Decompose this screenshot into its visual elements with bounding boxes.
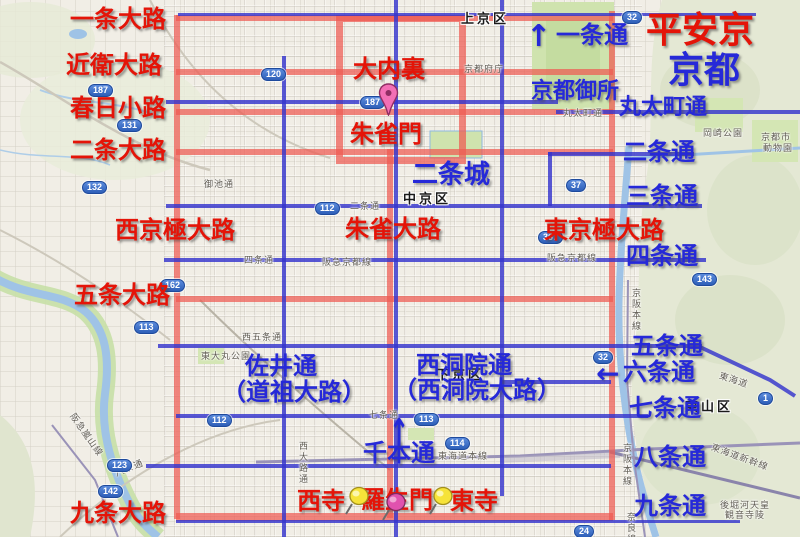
- modern-road-nijo-dori-link: [548, 152, 552, 206]
- map-text: 二条通: [350, 199, 380, 212]
- title-heiankyo: 平安京: [646, 12, 754, 50]
- route-shield-37: 37: [566, 179, 586, 192]
- route-shield-112: 112: [315, 202, 340, 215]
- direction-arrow-icon: ↑: [526, 22, 551, 52]
- modern-label: 六条通: [623, 361, 695, 386]
- map-canvas[interactable]: 平安京 京都 187131132162113120187112112113114…: [0, 0, 800, 537]
- ancient-road-nishikyogoku-oji: [174, 15, 180, 519]
- direction-arrow-icon: ↑: [389, 414, 409, 452]
- route-shield-123: 123: [107, 459, 132, 472]
- map-text: 東大丸公園: [201, 349, 251, 362]
- map-text: 岡崎公園: [703, 126, 743, 139]
- map-text: 西五条通: [242, 330, 282, 343]
- modern-label: 京都御所: [531, 79, 619, 102]
- route-shield-142: 142: [98, 485, 123, 498]
- modern-road-nishioji-dori: [282, 56, 286, 537]
- ancient-label: 大内裏: [353, 58, 425, 83]
- route-shield-24: 24: [574, 525, 594, 537]
- modern-label: 一条通: [556, 24, 628, 49]
- map-text: 京阪本線: [621, 443, 634, 487]
- route-shield-112: 112: [207, 414, 232, 427]
- route-shield-113: 113: [414, 413, 439, 426]
- map-text: 阪急京都線: [547, 251, 597, 264]
- ancient-label: 西寺: [297, 490, 345, 515]
- modern-label: 四条通: [626, 245, 698, 270]
- ancient-label: 一条大路: [70, 8, 166, 33]
- toji-pin-icon[interactable]: [427, 484, 455, 521]
- map-text: 阪急京都線: [322, 255, 372, 268]
- route-shield-113: 113: [134, 321, 159, 334]
- modern-label: 七条通: [629, 397, 701, 422]
- saiji-pin-icon[interactable]: [343, 484, 371, 521]
- route-shield-132: 132: [82, 181, 107, 194]
- map-text: 京都府庁: [464, 62, 504, 75]
- ancient-label: 東寺: [450, 490, 498, 515]
- modern-road-kujo-dori: [176, 520, 740, 523]
- modern-label: 八条通: [634, 446, 706, 471]
- district-label: 上京区: [461, 8, 509, 27]
- route-shield-120: 120: [261, 68, 286, 81]
- modern-label: 佐井通: [245, 355, 317, 380]
- modern-label: 三条通: [626, 185, 698, 210]
- daidairi-pin-icon[interactable]: [378, 83, 399, 121]
- map-text: 京阪本線: [630, 288, 643, 332]
- modern-label: 二条城: [412, 161, 490, 188]
- ancient-label: 西京極大路: [115, 219, 235, 244]
- ancient-label: 朱雀門: [350, 123, 422, 148]
- map-text: 丸太町通: [563, 106, 603, 119]
- modern-label: 二条通: [623, 141, 695, 166]
- map-text: 動物園: [763, 141, 793, 154]
- modern-label: 丸太町通: [619, 95, 707, 118]
- title-kyoto: 京都: [668, 52, 740, 90]
- modern-road-gojo-dori: [158, 344, 702, 348]
- ancient-label: 春日小路: [70, 97, 166, 122]
- ancient-label: 二条大路: [70, 139, 166, 164]
- map-text: 四条通: [244, 253, 274, 266]
- map-text: 西大路通: [297, 441, 310, 485]
- modern-label: （道祖大路）: [222, 381, 366, 406]
- direction-arrow-icon: ←: [596, 360, 619, 388]
- modern-label: （西洞院大路）: [393, 379, 561, 404]
- modern-label: 九条通: [634, 495, 706, 520]
- ancient-label: 九条大路: [70, 502, 166, 527]
- sw-hills: [0, 415, 35, 537]
- district-label: 中京区: [403, 188, 451, 207]
- map-text: 観音寺陵: [725, 508, 765, 521]
- route-shield-1: 1: [758, 392, 773, 405]
- rajomon-pin-icon[interactable]: [380, 490, 408, 527]
- ancient-label: 東京極大路: [544, 219, 664, 244]
- modern-road-shichijo-dori: [176, 414, 648, 418]
- modern-label: 五条通: [631, 335, 703, 360]
- route-shield-114: 114: [445, 437, 470, 450]
- route-shield-143: 143: [692, 273, 717, 286]
- ancient-label: 五条大路: [74, 284, 170, 309]
- ancient-label: 近衛大路: [66, 54, 162, 79]
- map-text: 東海道本線: [438, 449, 488, 462]
- map-text: 御池通: [204, 177, 234, 190]
- modern-label: 西洞院通: [416, 354, 512, 379]
- ancient-label: 朱雀大路: [345, 218, 441, 243]
